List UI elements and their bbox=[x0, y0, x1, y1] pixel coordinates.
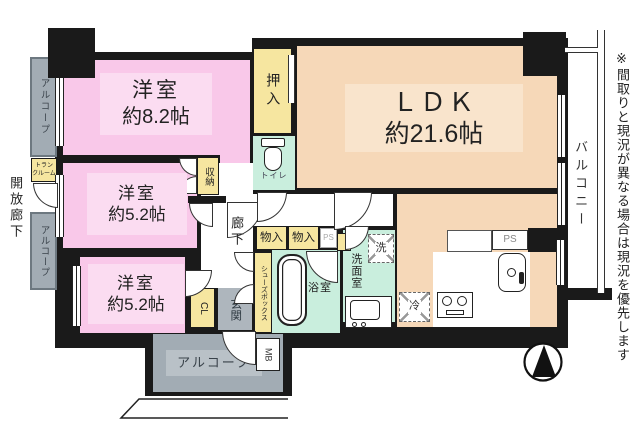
window-ldk-upper bbox=[557, 95, 566, 157]
toilet-bowl-icon bbox=[264, 147, 282, 171]
ldk-size: 約21.6帖 bbox=[385, 119, 484, 150]
cl-label: CL bbox=[196, 302, 209, 315]
bedroom3-name: 洋室 bbox=[117, 273, 155, 294]
washroom-label: 洗面室 bbox=[348, 253, 362, 289]
toilet-label-box: トイレ bbox=[255, 170, 293, 182]
oshiire-label: 押入 bbox=[264, 73, 282, 109]
disclaimer-text: ※間取りと現況が異なる場合は現況を優先します bbox=[613, 52, 632, 362]
kitchen-sink-icon bbox=[498, 253, 526, 292]
oshiire-closet: 押入 bbox=[253, 48, 292, 134]
shuno-label: 収納 bbox=[202, 167, 214, 186]
monoiri-b-label: 物入 bbox=[292, 231, 315, 245]
trunk-room-label: トランクルーム bbox=[32, 162, 56, 179]
ps-hall-label: PS bbox=[323, 233, 334, 243]
disclaimer-box: ※間取りと現況が異なる場合は現況を優先します bbox=[613, 52, 635, 422]
balcony-label: バルコニー bbox=[572, 140, 588, 230]
counter-icon bbox=[447, 230, 492, 252]
bedroom3-label-box: 洋室 約5.2帖 bbox=[88, 264, 184, 324]
fridge-label: 冷 bbox=[408, 300, 421, 314]
washer-space: 洗 bbox=[368, 234, 394, 263]
grill-icon bbox=[446, 310, 464, 315]
shoes-box-label: シューズボックス bbox=[259, 265, 268, 321]
sink-faucet-icon bbox=[519, 272, 524, 284]
balcony-label-box: バルコニー bbox=[570, 125, 590, 245]
window-kitchen bbox=[556, 240, 565, 285]
corridor-label-box: 廊下 bbox=[224, 208, 248, 256]
bedroom2-name: 洋室 bbox=[118, 183, 156, 204]
bedroom2-size: 約5.2帖 bbox=[108, 204, 166, 225]
corridor-label: 廊下 bbox=[228, 216, 244, 248]
open-corridor-label-box: 開放廊下 bbox=[4, 163, 26, 253]
window-bedroom1 bbox=[55, 78, 64, 146]
floor-plan: 押入 収納 物入 物入 PS CL シューズボックス 玄関 アルコープ トランク… bbox=[0, 0, 640, 433]
open-corridor-label: 開放廊下 bbox=[7, 176, 23, 240]
balcony-railing bbox=[597, 30, 605, 293]
bedroom2-label-box: 洋室 約5.2帖 bbox=[87, 173, 187, 235]
shuno-closet: 収納 bbox=[197, 157, 219, 195]
meter-box: MB bbox=[256, 338, 280, 371]
toilet-label: トイレ bbox=[261, 171, 288, 181]
balcony-railing-top bbox=[565, 47, 598, 53]
burner2-icon bbox=[457, 296, 467, 306]
trunk-room: トランクルーム bbox=[31, 158, 57, 182]
monoiri-a-label: 物入 bbox=[260, 231, 283, 245]
column-top-right bbox=[523, 32, 566, 76]
alcove-left-lower-label: アルコープ bbox=[38, 225, 50, 278]
meter-box-label: MB bbox=[262, 348, 273, 362]
ldk-name: ＬＤＫ bbox=[392, 86, 476, 119]
ps-hall-box: PS bbox=[320, 228, 337, 248]
monoiri-closet-b: 物入 bbox=[288, 226, 319, 250]
washroom-label-box: 洗面室 bbox=[346, 242, 364, 300]
toilet-icon bbox=[261, 138, 285, 147]
bedroom1-name: 洋室 bbox=[132, 78, 180, 104]
bedroom1-label-box: 洋室 約8.2帖 bbox=[100, 73, 212, 135]
wall-thin-oshiire bbox=[288, 55, 295, 103]
wall-kitchen-corner bbox=[528, 228, 557, 252]
door-arc-alcove bbox=[33, 183, 58, 208]
vanity-tap-icon bbox=[352, 322, 357, 327]
ps-kitchen-label: PS bbox=[503, 234, 516, 247]
sink-drain-icon bbox=[507, 268, 516, 277]
shoes-box: シューズボックス bbox=[254, 252, 272, 333]
wall-br1-door-jamb bbox=[188, 196, 226, 203]
window-ldk-lower bbox=[557, 163, 566, 225]
bedroom3-size: 約5.2帖 bbox=[107, 294, 165, 315]
monoiri-closet-a: 物入 bbox=[256, 226, 287, 250]
window-bedroom3 bbox=[72, 266, 81, 326]
bath-label: 浴室 bbox=[308, 282, 332, 296]
stove-icon bbox=[437, 292, 473, 318]
site-outline-lines bbox=[121, 399, 288, 418]
alcove-left-upper-label: アルコープ bbox=[38, 78, 50, 136]
north-compass-icon bbox=[525, 344, 562, 381]
column-top-left bbox=[48, 28, 95, 78]
vanity-tap2-icon bbox=[361, 322, 366, 327]
outside-gap-top bbox=[95, 38, 252, 52]
alcove-left-lower: アルコープ bbox=[30, 212, 57, 290]
ldk-label-box: ＬＤＫ 約21.6帖 bbox=[345, 84, 523, 152]
bath-label-box: 浴室 bbox=[300, 281, 340, 297]
ps-kitchen-box: PS bbox=[492, 230, 528, 250]
bedroom1-size: 約8.2帖 bbox=[122, 105, 190, 130]
fridge-space: 冷 bbox=[399, 292, 430, 322]
burner-icon bbox=[442, 296, 452, 306]
vanity-icon bbox=[345, 296, 392, 328]
vanity-basin-icon bbox=[350, 300, 380, 320]
washer-label: 洗 bbox=[375, 242, 388, 256]
